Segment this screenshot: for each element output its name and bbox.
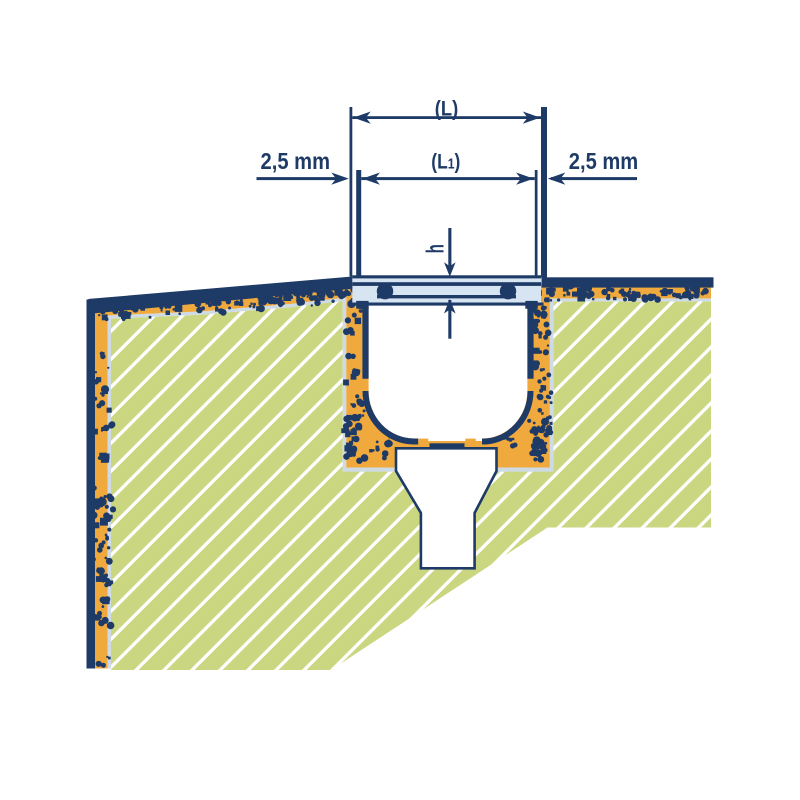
- svg-text:h: h: [422, 244, 450, 253]
- svg-text:2,5 mm: 2,5 mm: [569, 148, 639, 174]
- svg-text:2,5 mm: 2,5 mm: [261, 148, 331, 174]
- svg-text:(L): (L): [435, 96, 459, 120]
- svg-text:(L1): (L1): [431, 150, 460, 174]
